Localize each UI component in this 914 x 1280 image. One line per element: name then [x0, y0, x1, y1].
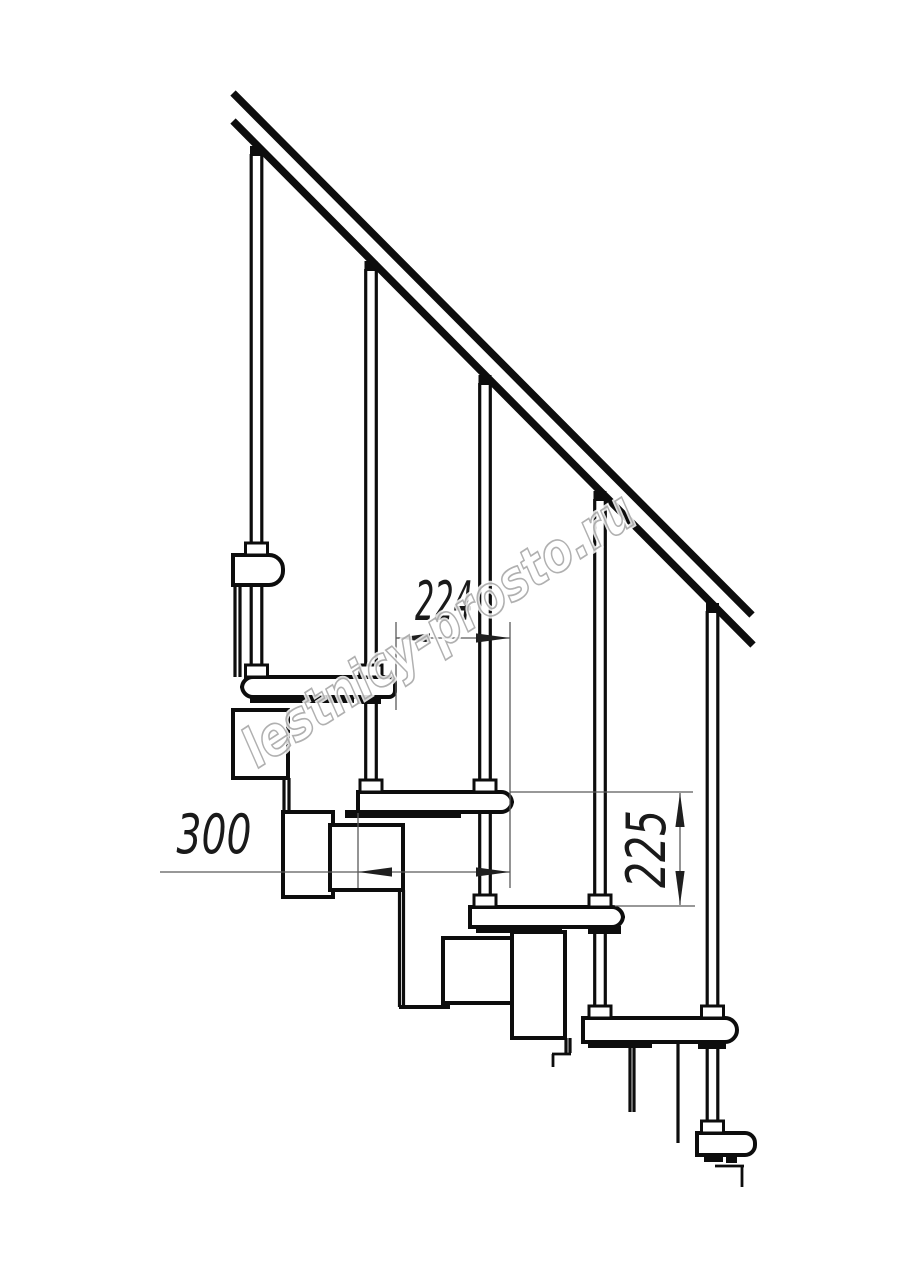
tread — [358, 792, 512, 812]
stringer-module-box — [443, 938, 517, 1003]
baluster-collar — [702, 1121, 724, 1133]
tread-clamp-strip — [476, 926, 562, 933]
stringer-module-box — [330, 825, 403, 890]
baluster — [594, 491, 607, 1018]
tread — [233, 555, 283, 585]
tread-clamp-strip — [698, 1041, 726, 1049]
dimension-label-depth: 300 — [177, 803, 252, 866]
baluster-collar — [589, 1006, 611, 1018]
tread-clamp-strip — [726, 1154, 737, 1163]
drawing-canvas: 224 300 225 lestnicy-prosto.ru lestnicy-… — [0, 0, 914, 1280]
tread-clamp-strip — [345, 810, 461, 818]
stringer-module-box — [512, 932, 565, 1038]
baluster-collar — [474, 780, 496, 792]
tread — [470, 907, 623, 927]
baluster-collar — [589, 895, 611, 907]
stringer-module-box — [283, 812, 333, 897]
tread-clamp-strip — [588, 926, 621, 934]
baluster-collar — [246, 665, 268, 677]
baluster-collar — [246, 543, 268, 555]
tread-clamp-strip — [588, 1041, 652, 1048]
baluster-collar — [360, 780, 382, 792]
dimension-arrowhead — [476, 867, 510, 876]
staircase-drawing: 224 300 225 lestnicy-prosto.ru lestnicy-… — [0, 0, 914, 1280]
watermark: lestnicy-prosto.ru lestnicy-prosto.ru — [230, 479, 646, 780]
baluster — [706, 603, 719, 1133]
tread-clamp-strip — [704, 1154, 723, 1162]
baluster-collar — [474, 895, 496, 907]
dimension-arrowhead — [675, 793, 684, 827]
tread — [583, 1018, 737, 1042]
baluster-collar — [702, 1006, 724, 1018]
tread — [697, 1133, 755, 1155]
dimension-label-rise: 225 — [615, 810, 678, 888]
handrail-line — [233, 93, 752, 615]
baluster — [250, 146, 263, 677]
watermark-text: lestnicy-prosto.ru — [230, 479, 646, 780]
